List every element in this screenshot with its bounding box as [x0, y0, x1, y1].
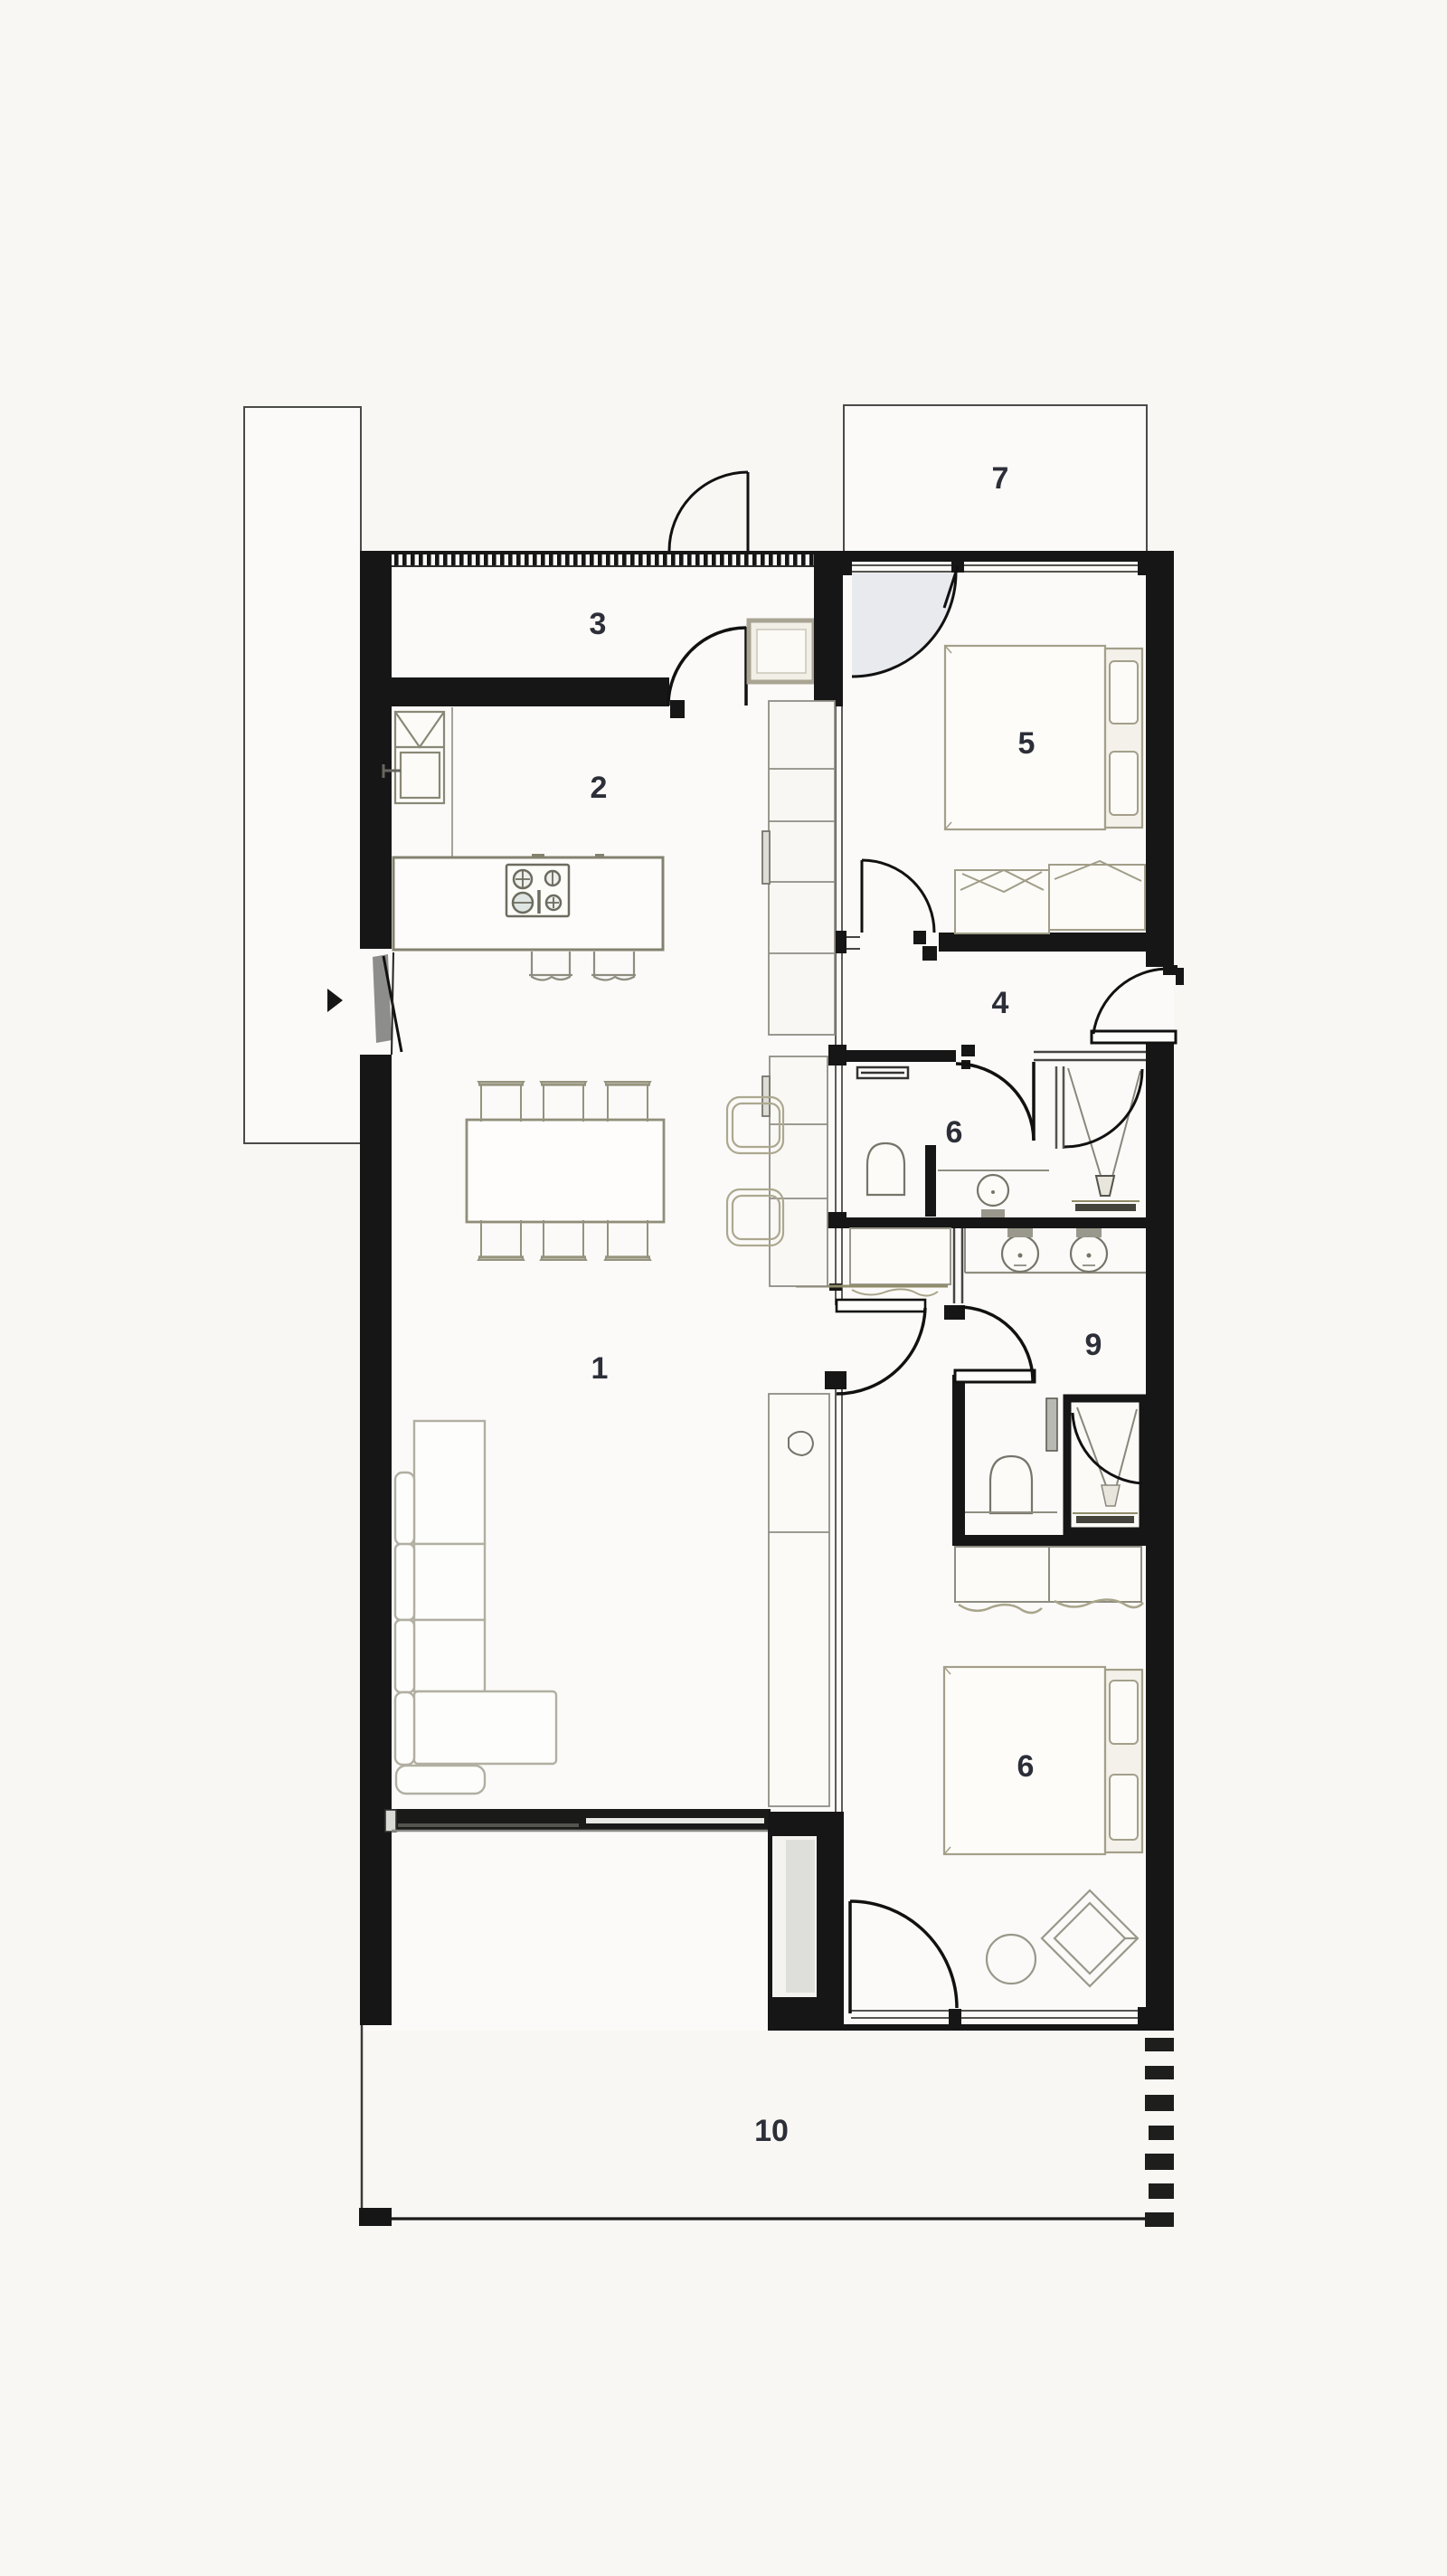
svg-text:9: 9: [1085, 1328, 1102, 1362]
svg-text:3: 3: [590, 607, 607, 641]
svg-text:6: 6: [946, 1115, 963, 1150]
svg-text:6: 6: [1017, 1749, 1035, 1784]
svg-text:10: 10: [754, 2114, 789, 2148]
svg-text:1: 1: [591, 1351, 609, 1386]
svg-text:2: 2: [591, 771, 608, 805]
svg-text:5: 5: [1018, 726, 1036, 761]
svg-text:4: 4: [992, 986, 1009, 1020]
svg-text:7: 7: [992, 461, 1009, 496]
